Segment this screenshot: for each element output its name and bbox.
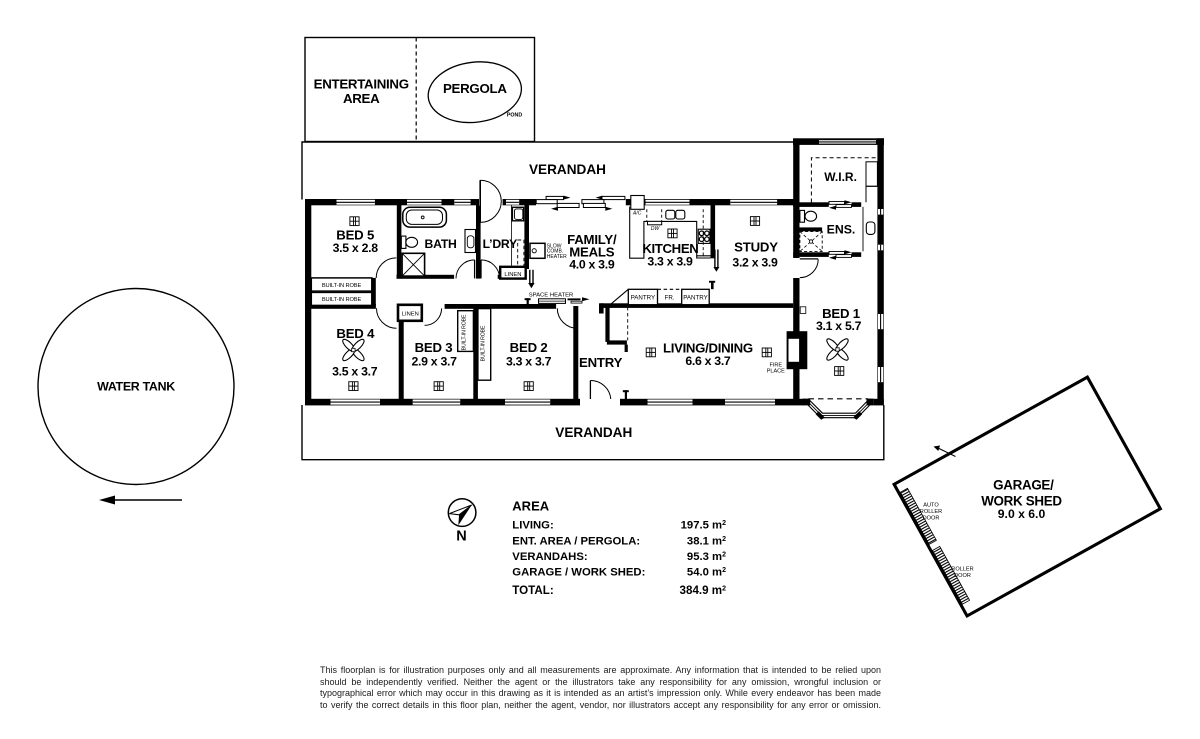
svg-text:BED 4: BED 4 — [336, 326, 375, 341]
svg-text:HEATER: HEATER — [547, 254, 567, 260]
svg-text:BUILT-IN ROBE: BUILT-IN ROBE — [462, 314, 468, 350]
svg-text:BUILT-IN ROBE: BUILT-IN ROBE — [322, 297, 362, 303]
svg-text:A/C: A/C — [632, 211, 642, 217]
svg-text:VERANDAH: VERANDAH — [555, 425, 632, 440]
svg-text:W.I.R.: W.I.R. — [824, 170, 857, 184]
svg-text:LINEN: LINEN — [504, 272, 521, 278]
svg-text:L’DRY: L’DRY — [483, 237, 518, 251]
svg-text:ROLLER: ROLLER — [951, 567, 973, 573]
svg-text:9.0 x 6.0: 9.0 x 6.0 — [998, 507, 1046, 521]
svg-text:BUILT-IN ROBE: BUILT-IN ROBE — [480, 325, 486, 361]
svg-text:BUILT-IN ROBE: BUILT-IN ROBE — [322, 283, 362, 289]
svg-text:DOOR: DOOR — [923, 516, 940, 522]
svg-text:BED 2: BED 2 — [510, 340, 548, 355]
svg-text:AUTO: AUTO — [923, 503, 939, 509]
svg-text:384.9 m2: 384.9 m2 — [680, 584, 727, 597]
svg-text:GARAGE / WORK SHED:: GARAGE / WORK SHED: — [512, 566, 645, 578]
svg-text:LINEN: LINEN — [402, 312, 419, 318]
svg-text:BED 3: BED 3 — [415, 340, 453, 355]
svg-text:DW: DW — [651, 226, 661, 232]
svg-text:3.5 x 2.8: 3.5 x 2.8 — [333, 241, 379, 255]
svg-text:4.0 x 3.9: 4.0 x 3.9 — [569, 257, 615, 271]
svg-text:AREA: AREA — [343, 91, 380, 106]
svg-text:BATH: BATH — [425, 237, 457, 251]
svg-text:PANTRY: PANTRY — [631, 295, 656, 302]
svg-text:3.5 x 3.7: 3.5 x 3.7 — [332, 365, 378, 379]
svg-text:54.0 m2: 54.0 m2 — [687, 566, 726, 578]
svg-text:ENT. AREA / PERGOLA:: ENT. AREA / PERGOLA: — [512, 535, 640, 547]
svg-text:GARAGE/: GARAGE/ — [993, 478, 1054, 493]
svg-text:TOTAL:: TOTAL: — [512, 584, 553, 597]
svg-text:N: N — [456, 529, 466, 545]
svg-text:VERANDAH: VERANDAH — [529, 162, 606, 177]
svg-text:ENTERTAINING: ENTERTAINING — [314, 77, 409, 92]
svg-text:SPACE HEATER: SPACE HEATER — [529, 293, 574, 299]
svg-text:FR.: FR. — [665, 295, 675, 302]
svg-text:3.1 x 5.7: 3.1 x 5.7 — [816, 319, 862, 333]
svg-text:POND: POND — [507, 113, 522, 119]
svg-text:VERANDAHS:: VERANDAHS: — [512, 551, 587, 563]
svg-text:6.6 x 3.7: 6.6 x 3.7 — [685, 354, 731, 368]
svg-text:ENTRY: ENTRY — [579, 355, 623, 370]
svg-text:3.3 x 3.9: 3.3 x 3.9 — [647, 255, 693, 269]
svg-text:ROLLER: ROLLER — [920, 509, 942, 515]
svg-text:ENS.: ENS. — [827, 222, 856, 236]
svg-text:2.9 x 3.7: 2.9 x 3.7 — [412, 354, 458, 368]
svg-text:PERGOLA: PERGOLA — [443, 81, 507, 96]
svg-text:WATER TANK: WATER TANK — [97, 379, 175, 393]
svg-text:KITCHEN: KITCHEN — [642, 241, 698, 256]
svg-text:PLACE: PLACE — [767, 368, 785, 374]
svg-text:38.1 m2: 38.1 m2 — [687, 535, 726, 547]
svg-text:DOOR: DOOR — [954, 573, 971, 579]
svg-text:LIVING:: LIVING: — [512, 520, 553, 532]
svg-text:PANTRY: PANTRY — [683, 295, 708, 302]
svg-text:95.3 m2: 95.3 m2 — [687, 551, 726, 563]
svg-text:197.5 m2: 197.5 m2 — [681, 520, 726, 532]
svg-text:AREA: AREA — [512, 498, 549, 513]
svg-text:STUDY: STUDY — [734, 239, 778, 254]
svg-text:3.3 x 3.7: 3.3 x 3.7 — [506, 354, 552, 368]
svg-text:3.2 x 3.9: 3.2 x 3.9 — [732, 255, 778, 269]
